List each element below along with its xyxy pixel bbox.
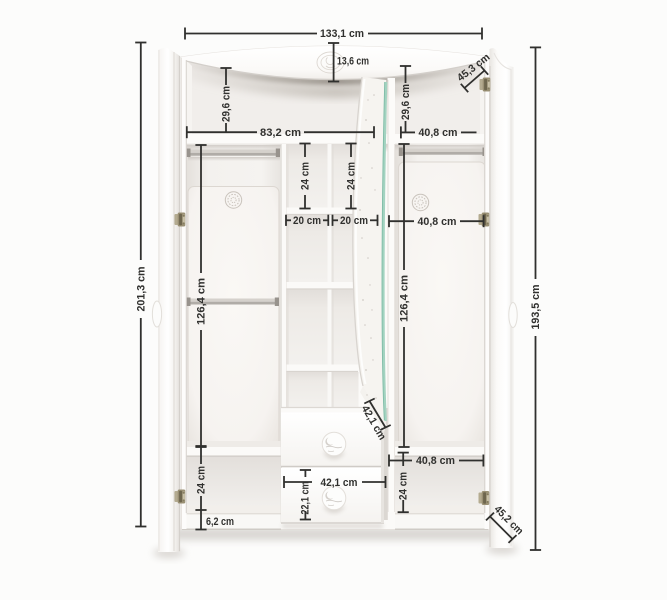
svg-text:24 cm: 24 cm <box>196 466 208 494</box>
svg-text:201,3 cm: 201,3 cm <box>135 267 147 312</box>
svg-text:22,1 cm: 22,1 cm <box>299 482 311 515</box>
svg-text:40,8 cm: 40,8 cm <box>416 455 455 467</box>
svg-text:133,1 cm: 133,1 cm <box>320 28 364 40</box>
svg-text:20 cm: 20 cm <box>293 215 321 227</box>
svg-text:29,6 cm: 29,6 cm <box>400 84 412 120</box>
svg-text:6,2 cm: 6,2 cm <box>206 516 234 528</box>
svg-text:13,6 cm: 13,6 cm <box>337 55 369 67</box>
svg-text:20 cm: 20 cm <box>340 215 368 227</box>
svg-text:126,4 cm: 126,4 cm <box>196 278 208 325</box>
svg-text:40,8 cm: 40,8 cm <box>419 127 458 139</box>
svg-text:83,2 cm: 83,2 cm <box>260 127 301 139</box>
svg-text:193,5 cm: 193,5 cm <box>530 285 542 330</box>
svg-text:24 cm: 24 cm <box>346 162 358 190</box>
svg-text:40,8 cm: 40,8 cm <box>418 216 457 228</box>
svg-text:24 cm: 24 cm <box>398 472 410 500</box>
svg-text:42,1 cm: 42,1 cm <box>321 477 358 489</box>
svg-text:29,6 cm: 29,6 cm <box>221 86 233 122</box>
svg-text:24 cm: 24 cm <box>300 162 312 190</box>
svg-text:126,4 cm: 126,4 cm <box>399 275 411 322</box>
